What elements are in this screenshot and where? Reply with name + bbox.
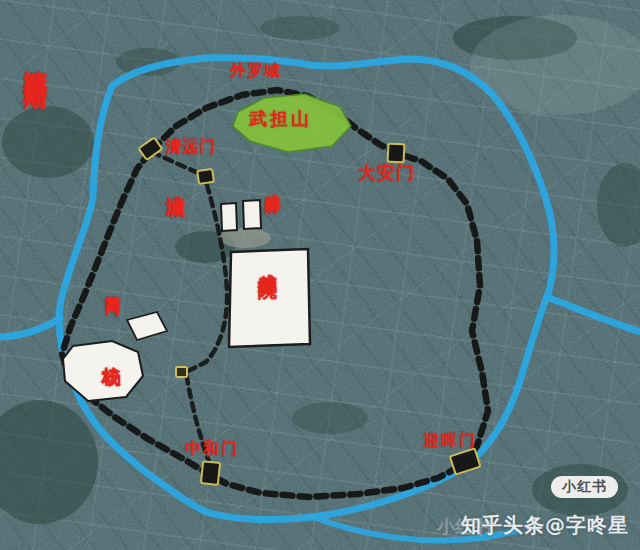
gate-zhonghe-label: 中和门	[185, 440, 239, 458]
examination-hall-label: 成都贡院	[257, 258, 278, 266]
gate-daan-label: 大安门	[358, 163, 415, 183]
drill-ground-label: 校场	[101, 351, 122, 355]
satellite-map: 清顺治时期 外罗城 武担山 清远门 满城 成都府 大安门 成都贡院 将军衙门 校…	[0, 0, 640, 550]
park-patch	[292, 402, 368, 434]
gate-marker-daan	[388, 144, 405, 163]
prefecture-building-right	[243, 200, 261, 229]
park-patch	[2, 106, 94, 178]
manchu-city-label: 满城	[165, 180, 186, 186]
bottom-credit-watermark: 知乎头条@字咚星	[461, 512, 629, 539]
map-graphics-layer	[0, 0, 640, 550]
gate-qingyuan-label: 清远门	[165, 138, 216, 156]
wudan-hill-label: 武担山	[249, 109, 312, 129]
prefecture-building-left	[221, 203, 237, 231]
gate-marker-zhonghe	[201, 461, 220, 485]
gate-yinghui-label: 迎晖门	[423, 432, 477, 450]
xiaohongshu-badge: 小红书	[551, 476, 618, 498]
gate-marker-small	[176, 367, 187, 377]
gate-marker-palace-north	[197, 169, 214, 184]
general-yamen-label: 将军衙门	[104, 284, 121, 288]
outer-wall-label: 外罗城	[230, 62, 281, 80]
park-patch	[260, 16, 340, 40]
chengdu-prefecture-label: 成都府	[263, 181, 281, 184]
era-title-label: 清顺治时期	[21, 50, 48, 70]
